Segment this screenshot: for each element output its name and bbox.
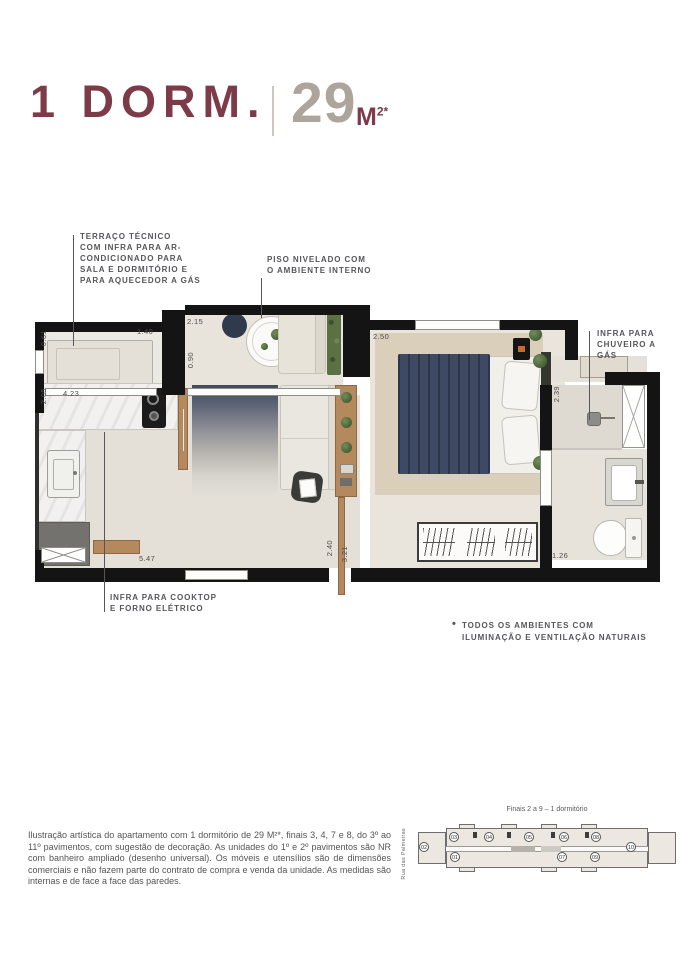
sofa-seam — [281, 438, 328, 439]
facade-tooth — [459, 824, 475, 829]
callout-line: O AMBIENTE INTERNO — [267, 265, 371, 276]
facade-tooth — [501, 824, 517, 829]
wall — [565, 320, 578, 360]
area-number: 29 — [291, 70, 356, 136]
dim-label: 2.50 — [373, 332, 389, 341]
window-terraco-kitchen — [45, 388, 157, 396]
duct-shaft — [41, 547, 86, 563]
dim-label: 1.26 — [552, 551, 568, 560]
leader-line-cooktop — [104, 432, 105, 612]
low-wood-shelf — [93, 540, 140, 554]
ac-unit-detail — [56, 348, 120, 380]
leader-line-terraco — [73, 235, 74, 346]
wardrobe-rail — [423, 542, 532, 543]
area-unit: M2* — [356, 103, 388, 132]
sink-basin — [611, 465, 637, 501]
dim-label: 0.61 — [39, 330, 48, 346]
wall-heater — [513, 338, 530, 360]
burner — [149, 411, 159, 421]
bathroom-sink — [605, 458, 643, 506]
shower-glass-panel — [622, 385, 645, 448]
wardrobe-gap — [495, 528, 505, 556]
shelf-partition — [335, 385, 357, 497]
facade-tooth — [459, 867, 475, 872]
unit-badge: 09 — [590, 852, 600, 862]
unit-badge: 08 — [591, 832, 601, 842]
unit-badge: 01 — [450, 852, 460, 862]
window-living — [185, 570, 248, 580]
unit-badge: 06 — [559, 832, 569, 842]
dim-label: 2.40 — [325, 540, 334, 556]
note-line: TODOS OS AMBIENTES COM — [462, 620, 647, 632]
callout-terraco-tecnico: TERRAÇO TÉCNICO COM INFRA PARA AR- CONDI… — [80, 231, 201, 286]
flush-button — [632, 536, 636, 540]
facade-tooth — [541, 824, 557, 829]
faucet — [635, 480, 644, 484]
heater-flame — [518, 346, 525, 352]
leader-line-chuveiro — [589, 331, 590, 420]
living-rug — [192, 385, 278, 495]
unit-badge: 04 — [484, 832, 494, 842]
pillow — [501, 361, 541, 412]
dim-label: 4.23 — [63, 389, 79, 398]
dim-label: 1.40 — [137, 327, 153, 336]
callout-line: CHUVEIRO A — [597, 339, 656, 350]
terrace-pouf — [222, 313, 247, 338]
dim-label: 3.21 — [340, 546, 349, 562]
wall-thin — [35, 395, 39, 568]
unit-badge: 07 — [557, 852, 567, 862]
stair-core — [585, 832, 589, 838]
wall — [162, 310, 185, 395]
callout-line: GÁS — [597, 350, 656, 361]
window-terraco — [35, 350, 44, 374]
living-pouf — [290, 470, 324, 504]
wall — [185, 305, 343, 315]
unit-badge: 05 — [524, 832, 534, 842]
shower-curb — [552, 448, 622, 450]
toilet-tank — [625, 518, 642, 558]
window-bedroom — [415, 320, 500, 330]
x-brace-icon — [623, 386, 644, 447]
shelf-plant — [341, 392, 352, 403]
unit-badge: 10 — [626, 842, 636, 852]
toilet-bowl — [593, 520, 627, 556]
elevator-core — [541, 846, 561, 852]
facade-tooth — [581, 867, 597, 872]
dim-label: 2.15 — [187, 317, 203, 326]
wall — [500, 320, 565, 330]
unit-badge: 03 — [449, 832, 459, 842]
callout-line: INFRA PARA — [597, 328, 656, 339]
facade-tooth — [541, 867, 557, 872]
dim-label: 2.05 — [39, 388, 48, 404]
ac-condenser-unit — [47, 340, 153, 388]
bathroom-door-threshold — [540, 450, 552, 506]
wall — [540, 385, 552, 450]
planter-box — [327, 313, 341, 375]
unit-badge: 02 — [419, 842, 429, 852]
note-ambientes: • TODOS OS AMBIENTES COM ILUMINAÇÃO E VE… — [452, 620, 647, 644]
building-end-right — [648, 832, 676, 864]
dim-label: 2.39 — [552, 386, 561, 402]
wall — [540, 506, 552, 568]
x-brace-icon — [42, 548, 85, 562]
shower-arm — [601, 417, 615, 419]
dim-label: 5.47 — [139, 554, 155, 563]
key-plan: Finais 2 a 9 – 1 dormitório Rua das Palm… — [415, 806, 685, 886]
callout-line: TERRAÇO TÉCNICO — [80, 231, 201, 242]
facade-tooth — [581, 824, 597, 829]
sideboard-handle — [183, 409, 184, 451]
wall — [370, 320, 415, 330]
stair-core — [507, 832, 511, 838]
leader-line-piso — [261, 278, 262, 318]
callout-line: PARA AQUECEDOR A GÁS — [80, 275, 201, 286]
shelf-box — [340, 464, 354, 474]
wardrobe-gap — [455, 528, 467, 556]
area-unit-letter: M — [356, 103, 377, 131]
sofa-backrest — [315, 313, 325, 373]
wall — [343, 305, 370, 377]
page-title: 1 DORM. — [30, 76, 267, 128]
bullet-icon: • — [452, 618, 457, 630]
dim-label: 0.90 — [186, 352, 195, 368]
elevator-core — [511, 846, 535, 852]
sink-basin — [53, 459, 74, 490]
keyplan-caption: Finais 2 a 9 – 1 dormitório — [446, 806, 648, 813]
table-plant-small — [261, 343, 268, 350]
callout-line: CONDICIONADO PARA — [80, 253, 201, 264]
callout-line: SALA E DORMITÓRIO E — [80, 264, 201, 275]
callout-line: INFRA PARA COOKTOP — [110, 592, 217, 603]
faucet — [73, 471, 77, 475]
wall — [647, 372, 660, 568]
stair-core — [551, 832, 555, 838]
callout-piso-nivelado: PISO NIVELADO COM O AMBIENTE INTERNO — [267, 254, 371, 276]
window-varanda-living — [187, 388, 341, 396]
stair-core — [473, 832, 477, 838]
callout-cooktop: INFRA PARA COOKTOP E FORNO ELÉTRICO — [110, 592, 217, 614]
title-separator — [272, 86, 274, 136]
area-unit-sup: 2* — [377, 105, 388, 119]
legal-disclaimer: Ilustração artística do apartamento com … — [28, 830, 391, 888]
sideboard — [178, 388, 188, 470]
note-line: ILUMINAÇÃO E VENTILAÇÃO NATURAIS — [462, 632, 647, 644]
headboard-plant — [533, 354, 547, 368]
terrace-sofa — [278, 312, 326, 374]
callout-chuveiro: INFRA PARA CHUVEIRO A GÁS — [597, 328, 656, 361]
callout-line: COM INFRA PARA AR- — [80, 242, 201, 253]
wardrobe — [417, 522, 538, 562]
shelf-plant — [341, 442, 352, 453]
callout-line: PISO NIVELADO COM — [267, 254, 371, 265]
book — [299, 478, 317, 498]
street-label: Rua das Palmeiras — [401, 828, 407, 880]
bed-blanket — [398, 354, 490, 474]
kitchen-sink — [47, 450, 80, 498]
shelf-plant — [341, 417, 352, 428]
shelf-box — [340, 478, 352, 486]
floor-plan: 0.61 1.40 2.15 0.90 2.50 2.05 4.23 2.39 … — [35, 300, 660, 590]
callout-line: E FORNO ELÉTRICO — [110, 603, 217, 614]
